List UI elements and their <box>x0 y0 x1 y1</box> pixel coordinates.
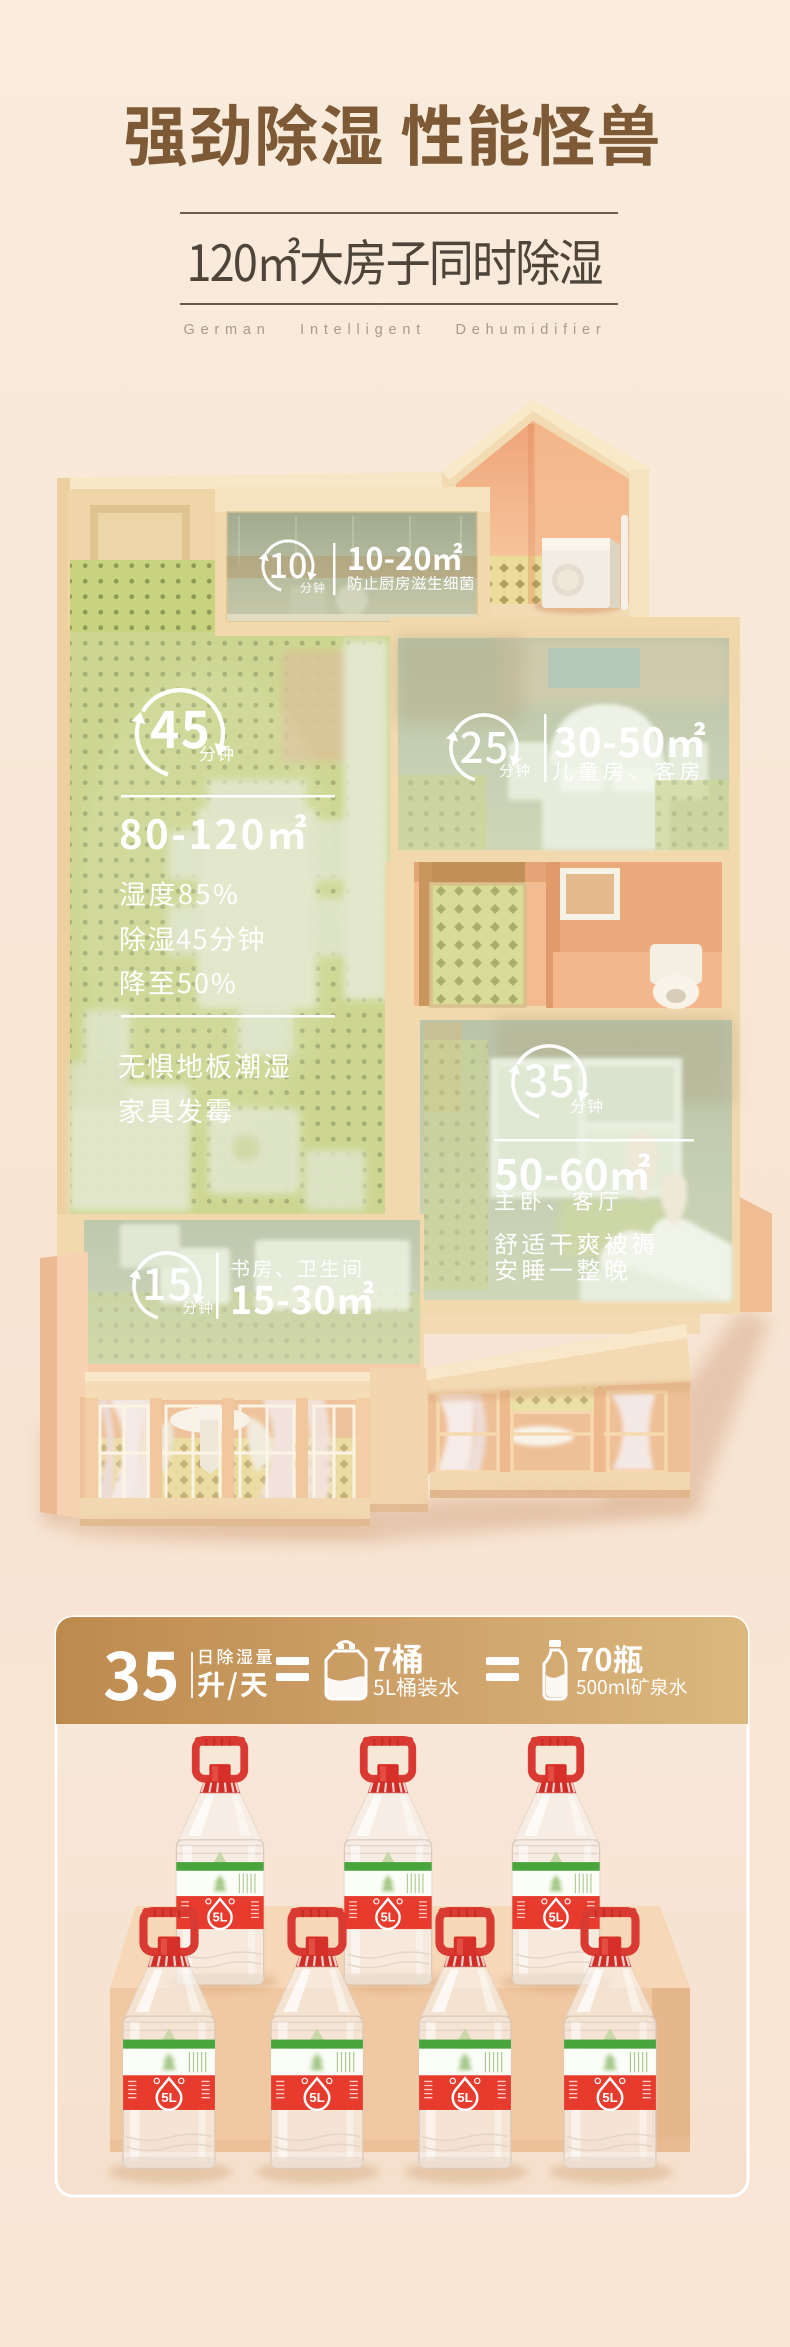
svg-text:German Intelligent Dehumid: German Intelligent Dehumidifier <box>183 322 606 338</box>
